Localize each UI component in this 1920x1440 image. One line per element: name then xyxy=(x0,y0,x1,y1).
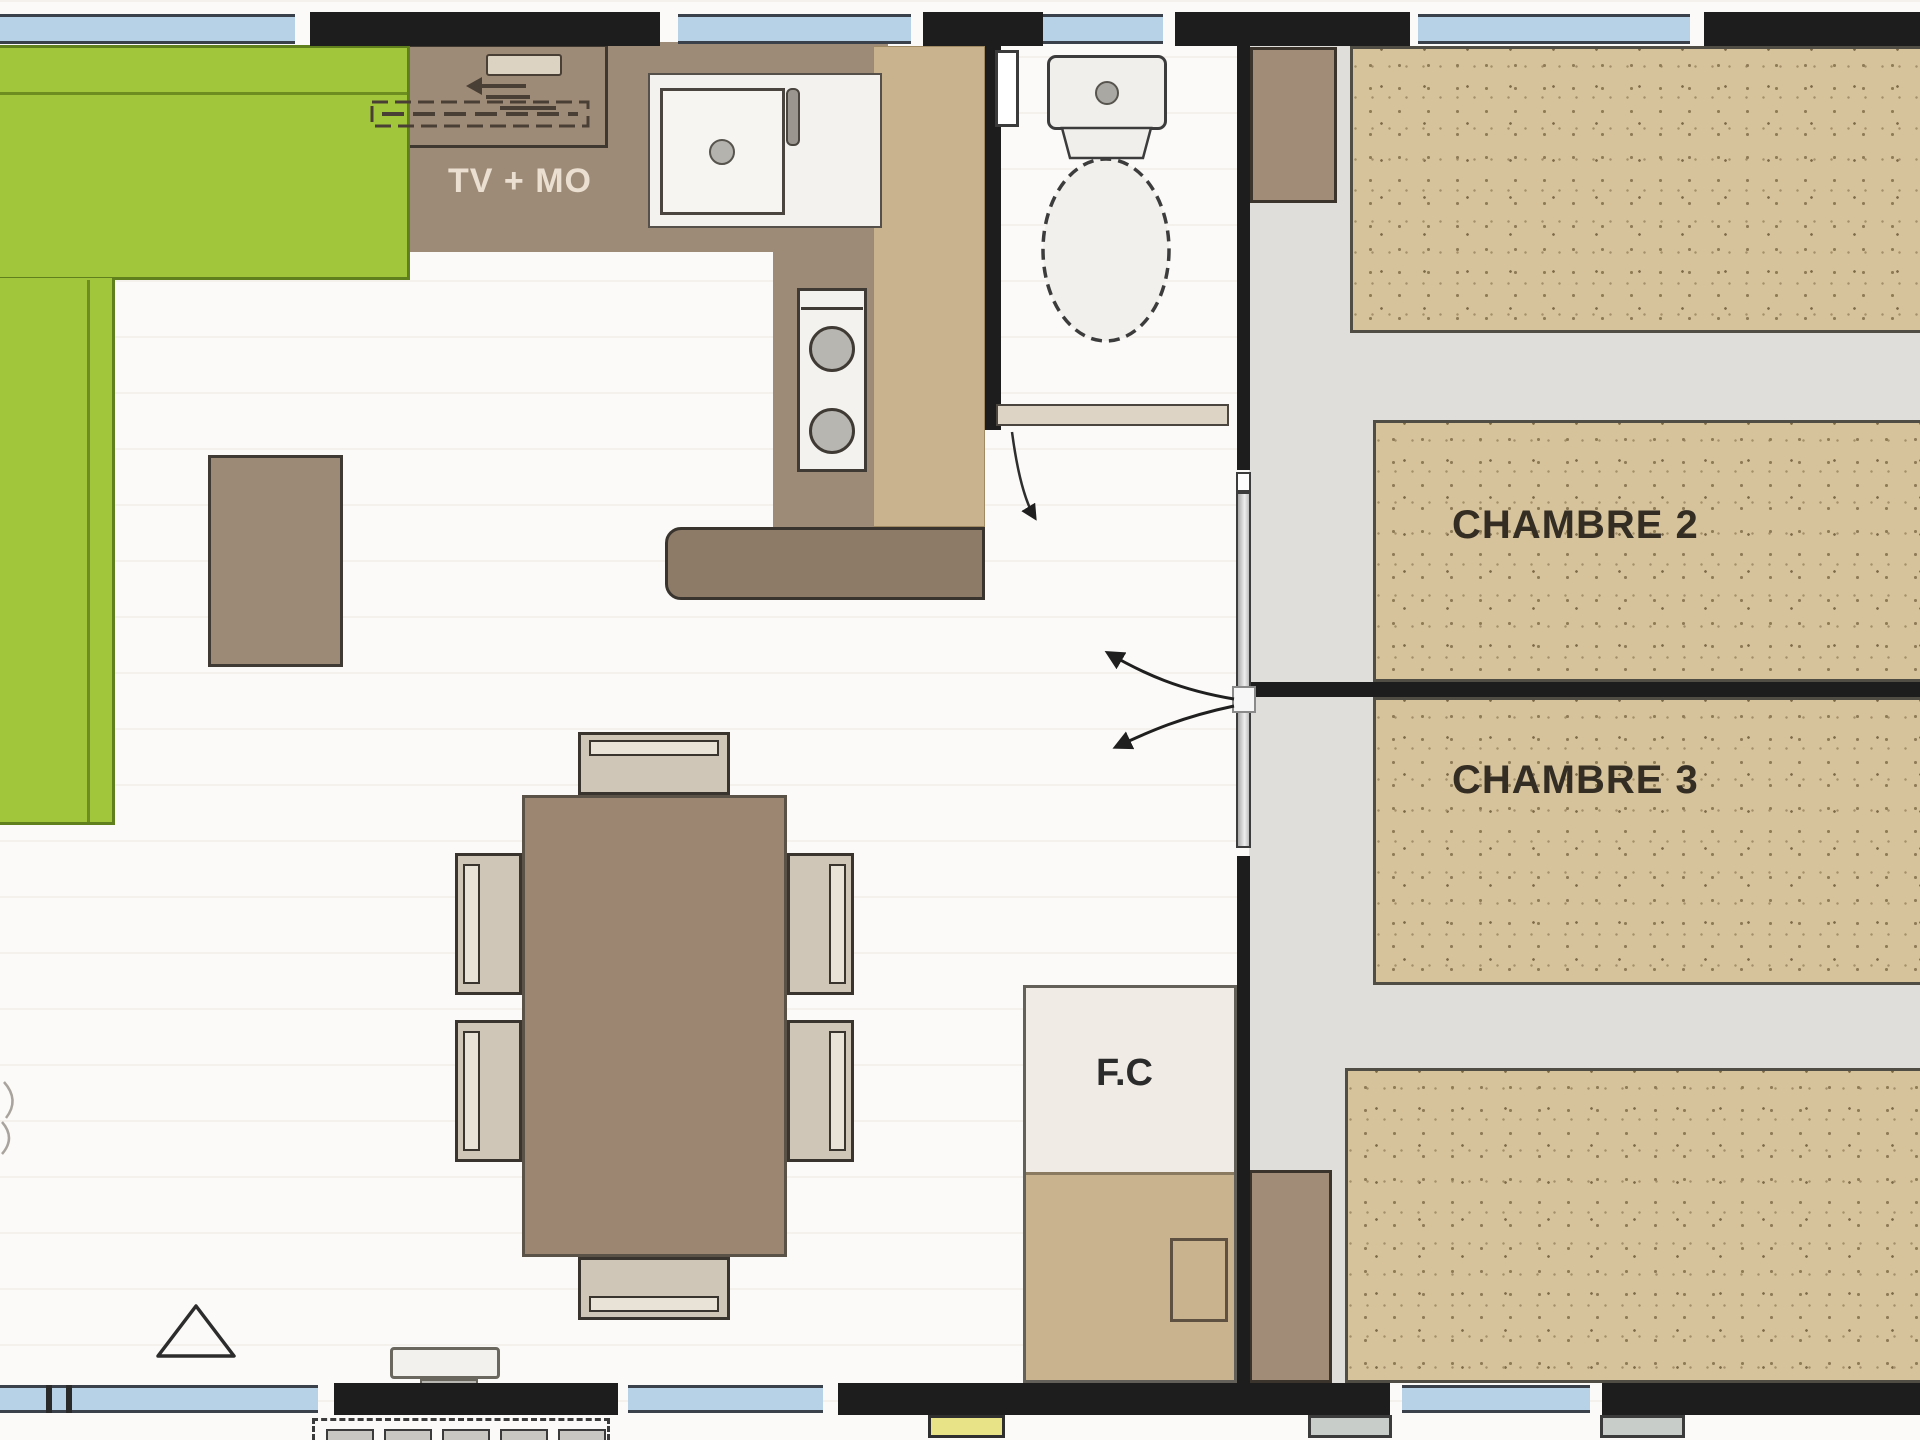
wardrobe xyxy=(1250,47,1337,203)
toilet-paper-holder-icon xyxy=(995,50,1019,127)
sofa-seam xyxy=(0,92,407,95)
wall-top xyxy=(923,12,1043,46)
chair xyxy=(787,853,854,995)
chair xyxy=(455,853,522,995)
window xyxy=(1418,14,1690,44)
chair xyxy=(578,732,730,795)
triangle-marker-icon xyxy=(158,1306,234,1356)
wall-bottom xyxy=(334,1383,618,1415)
tv-label: TV + MO xyxy=(448,162,592,201)
bed xyxy=(1373,420,1920,682)
fc-inner-door xyxy=(1170,1238,1228,1322)
room-label-chambre2: CHAMBRE 2 xyxy=(1452,503,1699,548)
toilet-icon xyxy=(1043,128,1169,341)
window xyxy=(628,1385,823,1413)
sofa xyxy=(0,45,410,280)
sliding-door-handle xyxy=(1236,472,1251,492)
side-table xyxy=(208,455,343,667)
sofa-chaise xyxy=(0,278,115,825)
wall-bottom xyxy=(838,1383,1390,1415)
sink-drain-icon xyxy=(709,139,735,165)
radiator xyxy=(390,1347,500,1379)
burner-icon xyxy=(809,326,855,372)
window-mullion xyxy=(46,1385,52,1413)
window xyxy=(1043,14,1163,44)
entry-step-yellow xyxy=(928,1415,1005,1438)
window xyxy=(1402,1385,1590,1413)
faucet-icon xyxy=(786,88,800,146)
sofa-seam xyxy=(87,280,90,822)
door-swing-arc-icon xyxy=(1012,432,1035,518)
tv-screen-icon xyxy=(486,54,562,76)
sliding-door-junction xyxy=(1232,686,1256,713)
fc-label: F.C xyxy=(1096,1052,1153,1095)
bed xyxy=(1345,1068,1920,1383)
tall-cabinet xyxy=(873,46,985,527)
chair xyxy=(787,1020,854,1162)
wall-bedroom-divider xyxy=(1250,682,1920,697)
window xyxy=(0,14,295,44)
wardrobe xyxy=(1249,1170,1332,1383)
chair xyxy=(578,1257,730,1320)
window-mullion xyxy=(66,1385,72,1413)
burner-icon xyxy=(809,408,855,454)
outdoor-step xyxy=(1308,1415,1392,1438)
outdoor-steps xyxy=(312,1418,610,1440)
dining-table xyxy=(522,795,787,1257)
room-label-chambre3: CHAMBRE 3 xyxy=(1452,758,1699,803)
wall-bottom xyxy=(1602,1383,1920,1415)
counter-end-cap xyxy=(665,527,985,600)
door-swing-arrows-icon xyxy=(1108,653,1234,747)
stove-grill-line xyxy=(801,307,863,310)
window xyxy=(678,14,911,44)
curtain-arc-icon xyxy=(2,1082,13,1154)
wall-top xyxy=(310,12,660,46)
bed xyxy=(1373,697,1920,985)
wall-corridor-bottom xyxy=(1237,856,1250,1383)
outdoor-step xyxy=(1600,1415,1685,1438)
toilet-flush-button xyxy=(1095,81,1119,105)
wall-top xyxy=(1704,12,1920,46)
floor-plan: TV + MO F.C CHAMBRE 2 CHAMBRE 3 xyxy=(0,0,1920,1440)
wall-top xyxy=(1175,12,1410,46)
wc-door xyxy=(996,404,1229,426)
sliding-door xyxy=(1236,492,1251,848)
wall-corridor-top xyxy=(1237,46,1250,470)
chair xyxy=(455,1020,522,1162)
bed xyxy=(1350,46,1920,333)
